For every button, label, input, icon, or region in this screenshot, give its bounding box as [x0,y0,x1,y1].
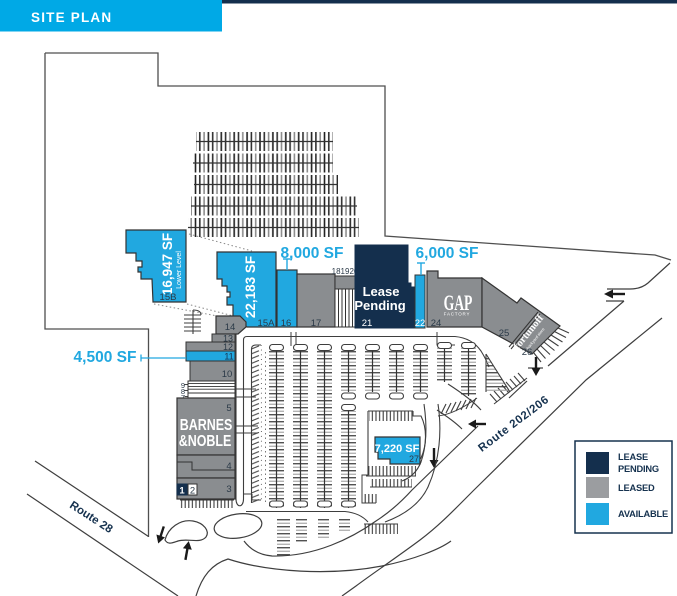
svg-text:25: 25 [499,328,510,339]
svg-text:8,000 SF: 8,000 SF [281,245,344,262]
svg-text:15A: 15A [258,318,276,329]
svg-text:LEASED: LEASED [618,483,655,493]
svg-text:11: 11 [224,352,233,362]
svg-text:3: 3 [226,484,231,495]
svg-text:Pending: Pending [354,298,405,313]
svg-text:Lease: Lease [363,284,400,299]
svg-text:LEASE: LEASE [618,452,648,462]
svg-text:16,947 SF: 16,947 SF [160,233,175,295]
svg-text:5: 5 [226,403,231,414]
svg-text:FACTORY: FACTORY [444,312,471,317]
svg-text:26: 26 [522,347,533,358]
svg-text:SITE PLAN: SITE PLAN [31,10,112,25]
svg-text:17: 17 [311,318,322,329]
svg-text:2: 2 [190,486,195,497]
svg-text:24: 24 [431,318,442,329]
svg-text:16: 16 [281,318,292,329]
svg-text:14: 14 [225,322,236,333]
svg-text:27: 27 [409,454,419,464]
svg-text:21: 21 [362,318,373,329]
svg-text:22: 22 [415,318,426,329]
svg-text:6,000 SF: 6,000 SF [416,245,479,262]
svg-text:10: 10 [222,369,233,380]
svg-text:1: 1 [179,486,185,497]
svg-text:AVAILABLE: AVAILABLE [618,509,668,519]
svg-text:4,500 SF: 4,500 SF [74,349,137,366]
svg-text:22,183 SF: 22,183 SF [243,256,258,318]
svg-text:Lower Level: Lower Level [176,251,183,289]
svg-text:4: 4 [226,461,231,472]
svg-text:PENDING: PENDING [618,464,659,474]
svg-text:&NOBLE: &NOBLE [179,433,232,451]
svg-text:15B: 15B [160,292,177,303]
